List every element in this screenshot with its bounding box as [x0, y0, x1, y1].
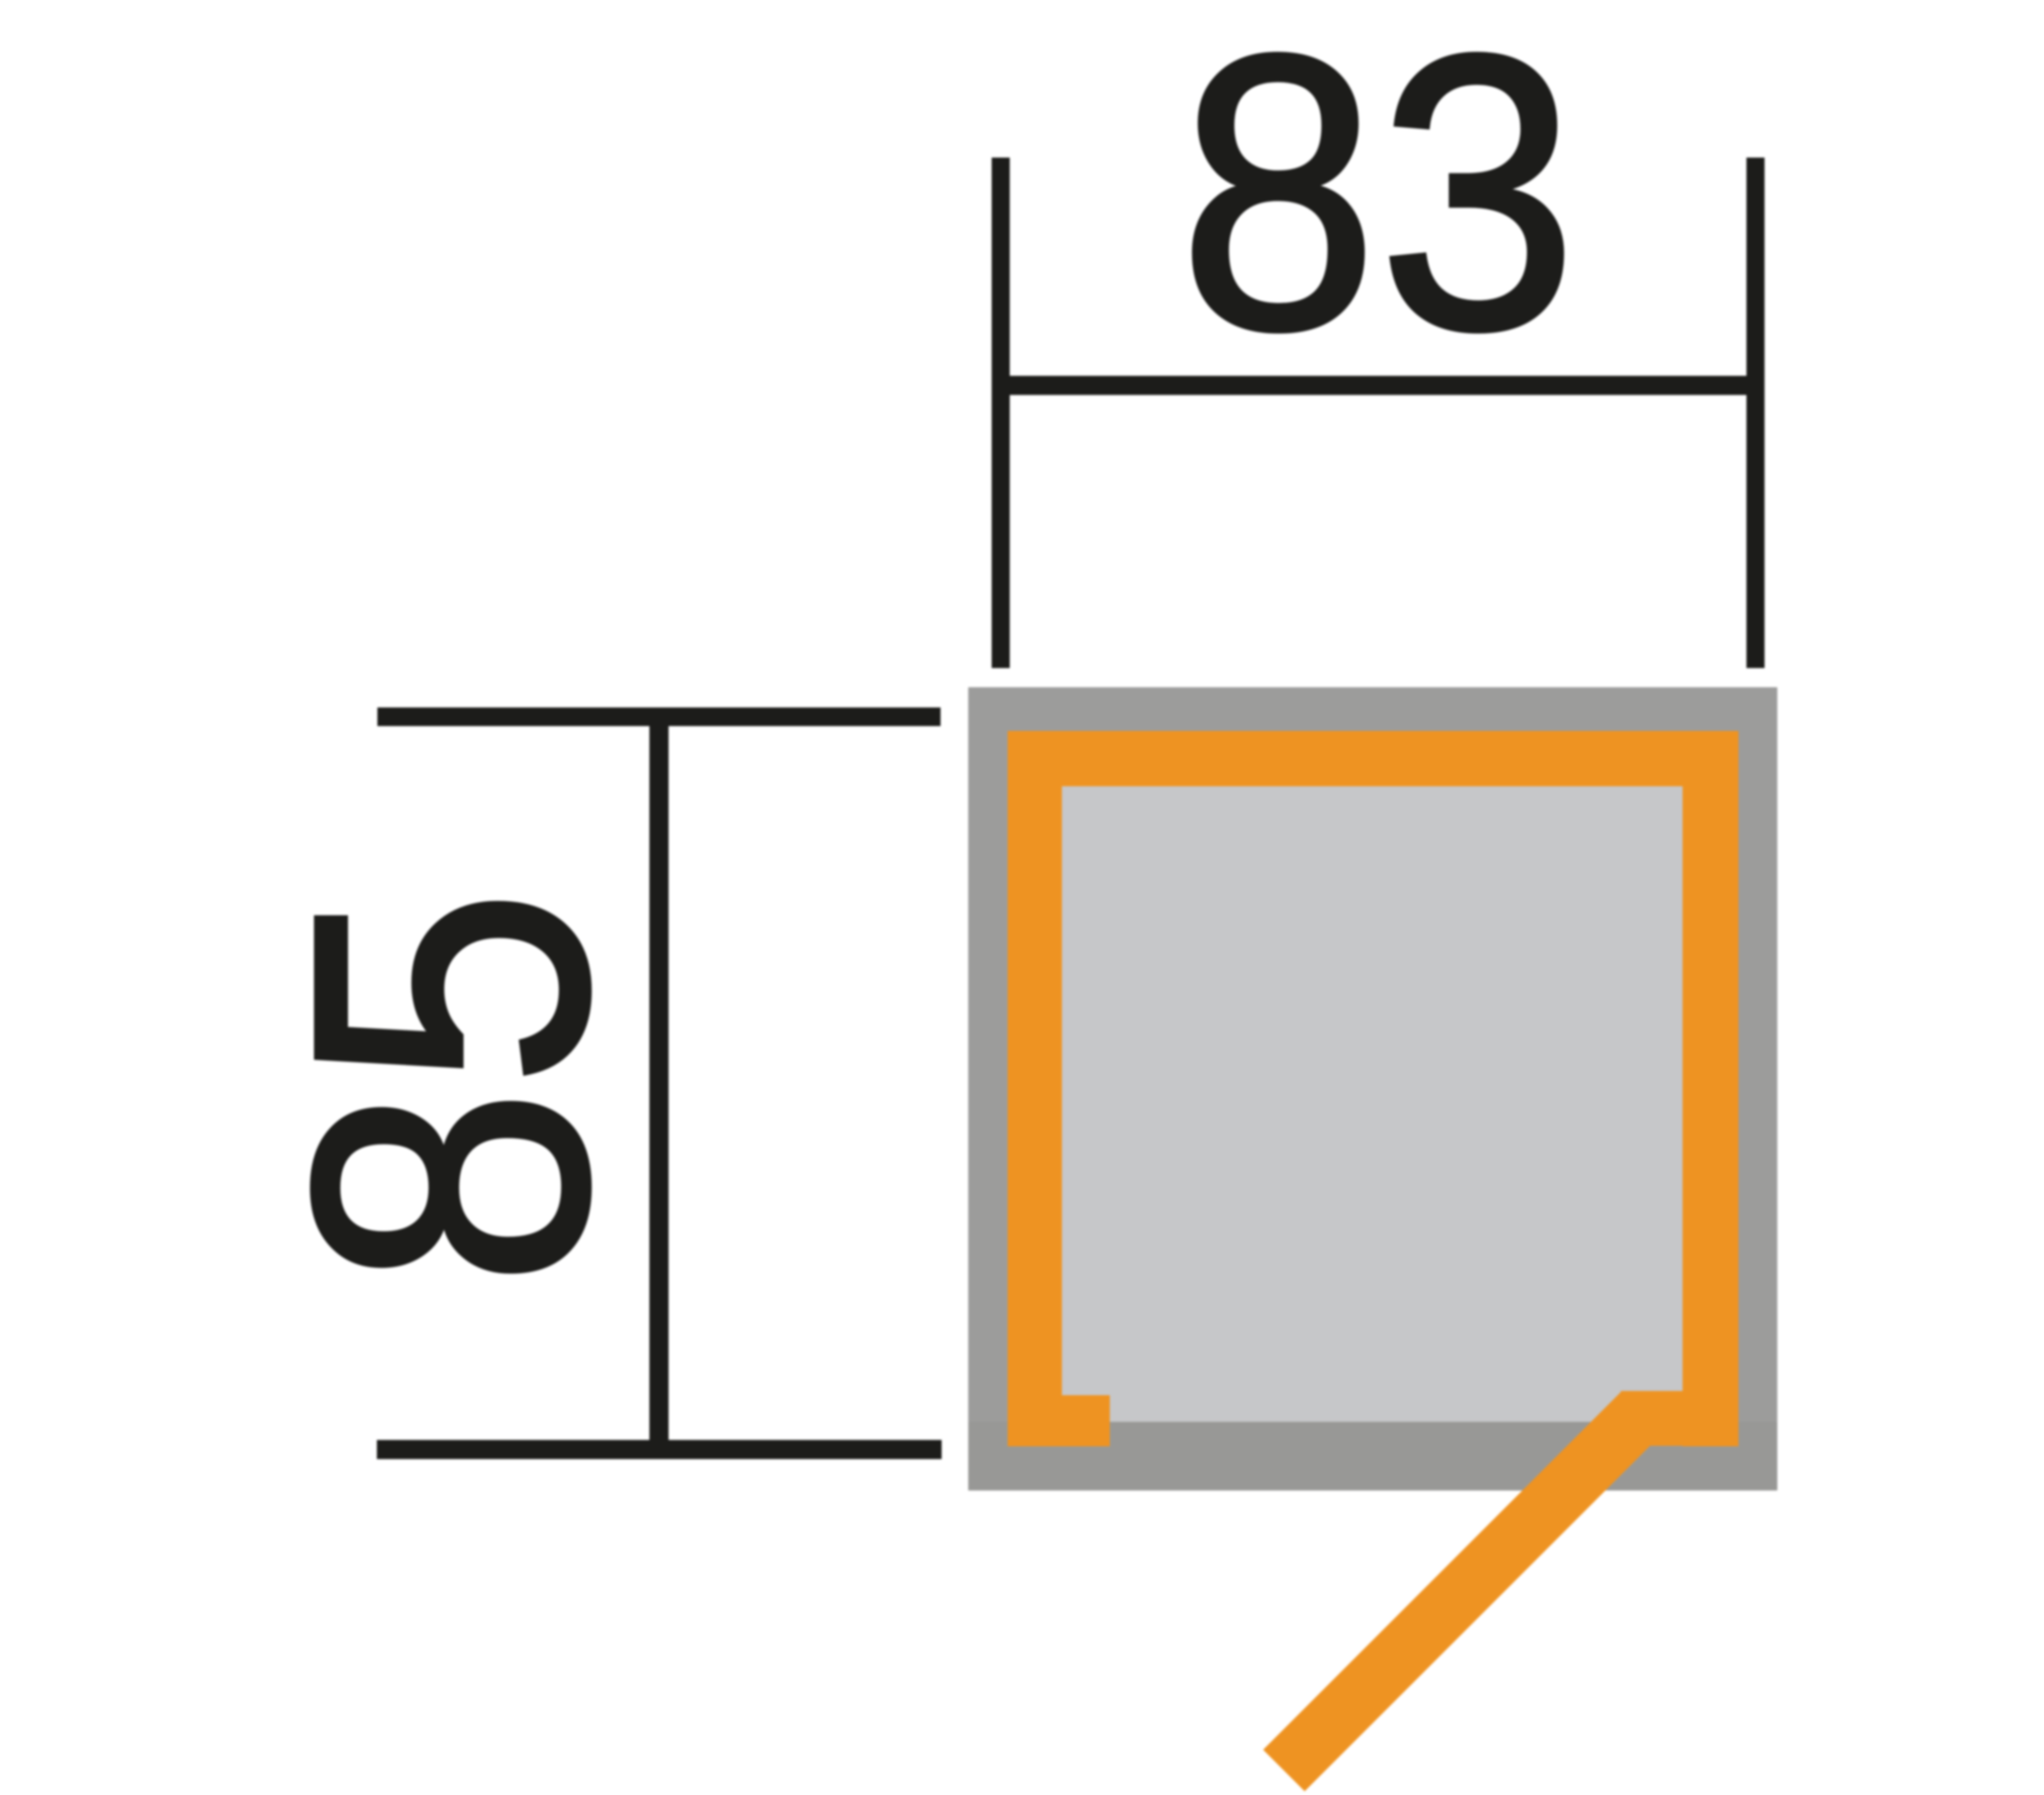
svg-text:83: 83 [1178, 0, 1578, 410]
svg-text:85: 85 [232, 888, 669, 1287]
